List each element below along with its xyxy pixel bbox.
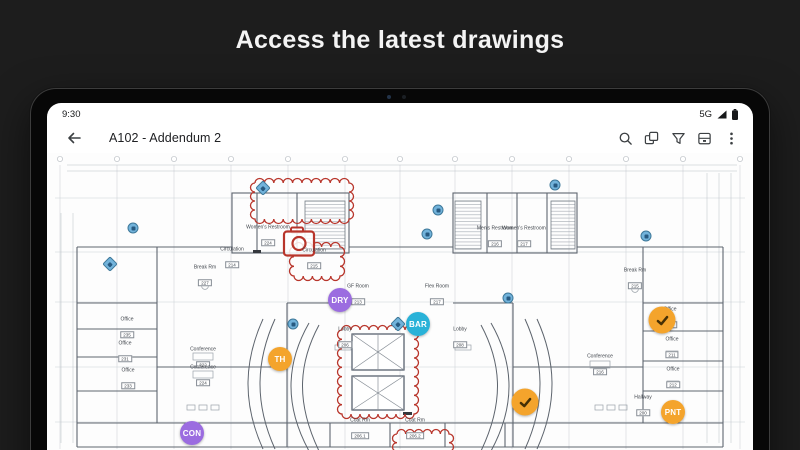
floor-plan-linework <box>47 153 753 450</box>
front-camera-icon <box>387 95 391 99</box>
status-network-label: 5G <box>699 109 712 120</box>
sheet-title: A102 - Addendum 2 <box>109 131 221 145</box>
issue-marker-circle[interactable] <box>503 293 514 304</box>
pin-th[interactable]: TH <box>268 347 292 371</box>
tablet-device-frame: 9:30 5G A102 - Addendum 2 <box>30 88 770 450</box>
compare-sheets-icon[interactable] <box>644 130 660 146</box>
issue-marker-circle[interactable] <box>288 319 299 330</box>
issue-marker-circle[interactable] <box>550 180 561 191</box>
issue-marker-circle[interactable] <box>422 229 433 240</box>
filter-icon[interactable] <box>670 130 686 146</box>
pin-con[interactable]: CON <box>180 421 204 445</box>
pin-check-1[interactable] <box>649 307 676 334</box>
pin-check-2[interactable] <box>512 389 539 416</box>
marketing-screenshot: Access the latest drawings 9:30 5G A102 … <box>0 0 800 450</box>
signal-icon <box>717 110 727 119</box>
issue-marker-circle[interactable] <box>641 231 652 242</box>
battery-icon <box>732 109 738 120</box>
issue-marker-circle[interactable] <box>128 223 139 234</box>
hero-title: Access the latest drawings <box>0 26 800 55</box>
sheet-versions-icon[interactable] <box>697 130 713 146</box>
app-toolbar: A102 - Addendum 2 <box>47 123 753 153</box>
issue-marker-circle[interactable] <box>433 205 444 216</box>
overflow-menu-icon[interactable] <box>723 130 739 146</box>
status-time: 9:30 <box>62 109 81 120</box>
pin-dry[interactable]: DRY <box>328 288 352 312</box>
photo-marker-camera-icon[interactable] <box>284 228 314 256</box>
status-bar: 9:30 5G <box>47 103 753 123</box>
search-icon[interactable] <box>617 130 633 146</box>
back-arrow-icon[interactable] <box>65 129 83 147</box>
pin-pnt[interactable]: PNT <box>661 400 685 424</box>
drawing-canvas[interactable]: Women's Restroom224Men's Restroom216Wome… <box>47 153 753 450</box>
app-screen: 9:30 5G A102 - Addendum 2 <box>47 103 753 450</box>
ambient-sensor-icon <box>402 95 406 99</box>
check-icon <box>517 394 533 410</box>
pin-bar[interactable]: BAR <box>406 312 430 336</box>
check-icon <box>654 312 670 328</box>
